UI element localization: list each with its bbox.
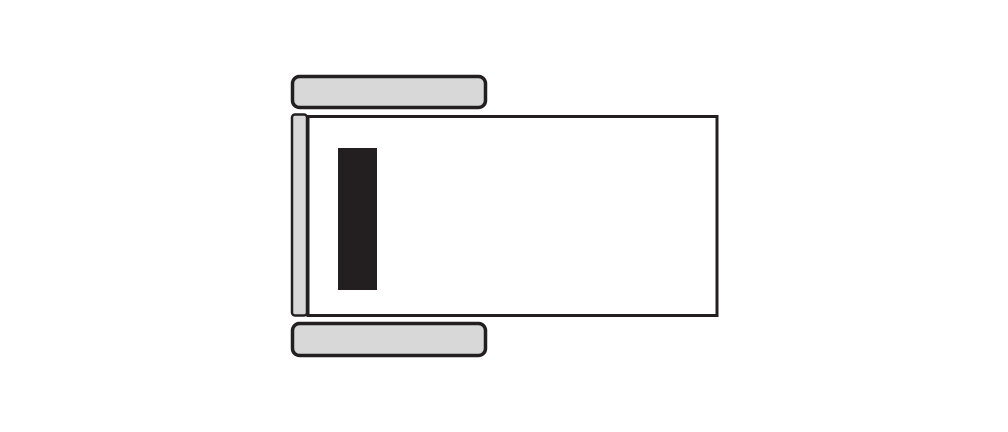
diagram-page xyxy=(0,0,1008,432)
top-wheel-shape xyxy=(293,77,486,108)
bottom-wheel-shape xyxy=(293,324,486,356)
dark-slot-shape xyxy=(338,148,377,290)
side-rail-shape xyxy=(292,115,307,316)
equipment-top-view-diagram xyxy=(0,0,1008,432)
